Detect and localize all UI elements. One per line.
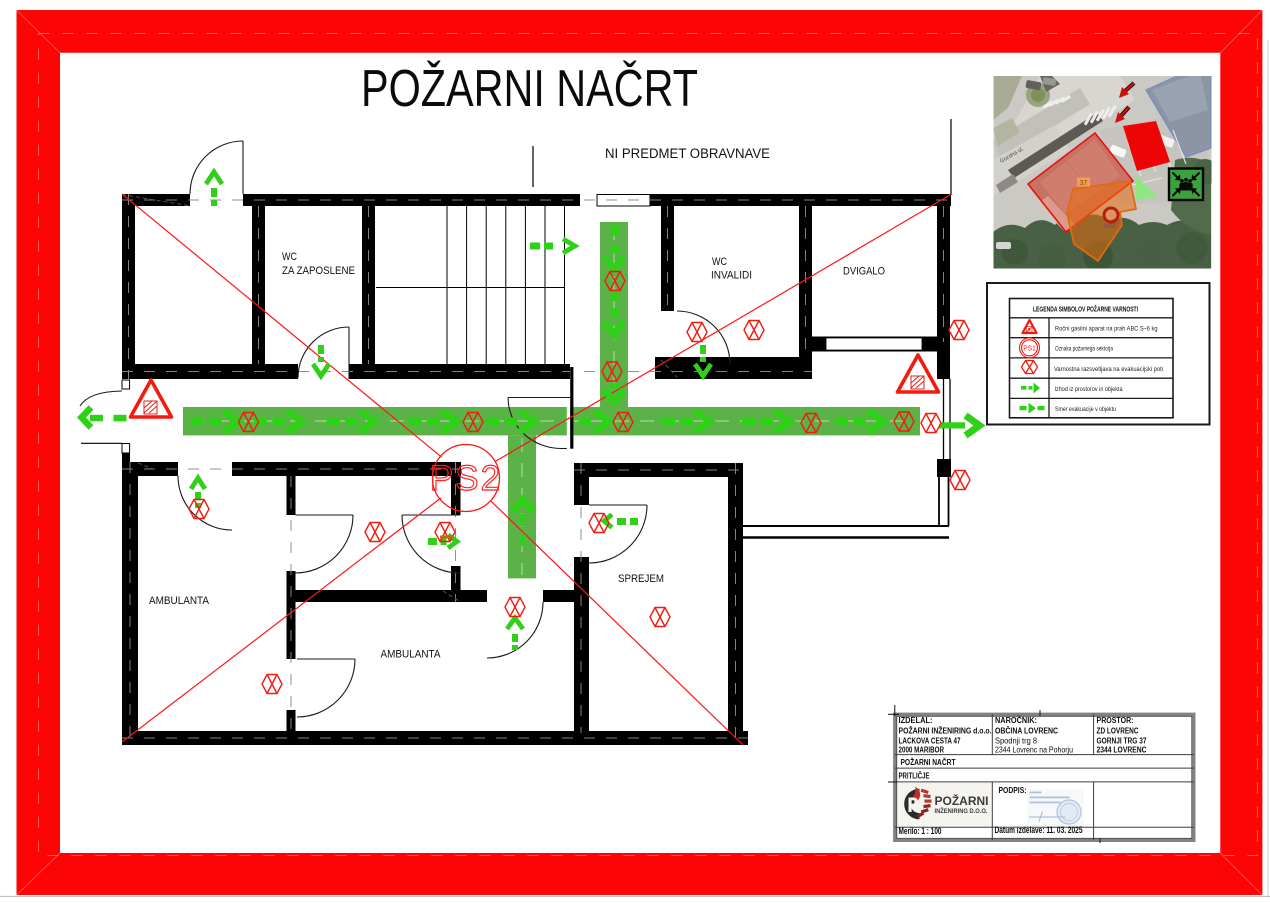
svg-text:AMBULANTA: AMBULANTA	[149, 595, 210, 607]
svg-text:PS2: PS2	[430, 459, 502, 498]
svg-text:Merilo: 1 : 100: Merilo: 1 : 100	[899, 826, 942, 836]
svg-text:Varnostna razsvetljava na evak: Varnostna razsvetljava na evakuacijski p…	[1054, 366, 1163, 373]
svg-text:PROSTOR:: PROSTOR:	[1097, 716, 1134, 725]
svg-text:NI PREDMET OBRAVNAVE: NI PREDMET OBRAVNAVE	[605, 146, 770, 161]
svg-text:SPREJEM: SPREJEM	[618, 573, 664, 585]
svg-text:Smer evakuacije v objektu: Smer evakuacije v objektu	[1055, 406, 1116, 413]
svg-text:1655: 1655	[1103, 224, 1117, 230]
svg-text:Spodnji trg 8: Spodnji trg 8	[995, 737, 1038, 746]
svg-text:NAROČNIK:: NAROČNIK:	[995, 716, 1037, 725]
svg-text:LEGENDA SIMBOLOV POŽARNE VARNO: LEGENDA SIMBOLOV POŽARNE VARNOSTI	[1033, 305, 1138, 314]
svg-text:PODPIS:: PODPIS:	[999, 785, 1027, 795]
svg-text:Izhod iz prostorov in objekta: Izhod iz prostorov in objekta	[1055, 386, 1123, 393]
svg-text:POŽARNI NAČRT: POŽARNI NAČRT	[361, 60, 698, 118]
svg-text:2344 LOVRENC: 2344 LOVRENC	[1097, 745, 1147, 754]
svg-text:POŽARNI: POŽARNI	[935, 795, 989, 808]
svg-text:INŽENIRING D.O.O.: INŽENIRING D.O.O.	[935, 806, 988, 815]
svg-text:WC: WC	[712, 256, 727, 268]
svg-text:PS1: PS1	[1023, 343, 1036, 352]
svg-text:IZDELAL:: IZDELAL:	[899, 716, 933, 725]
svg-text:2344 Lovrenc na Pohorju: 2344 Lovrenc na Pohorju	[995, 745, 1073, 754]
svg-text:PRITLIČJE: PRITLIČJE	[899, 772, 930, 781]
svg-text:Ročni gasilni aparat na prah A: Ročni gasilni aparat na prah ABC S–6 kg	[1055, 325, 1158, 332]
svg-text:DVIGALO: DVIGALO	[843, 266, 885, 278]
svg-text:AMBULANTA: AMBULANTA	[381, 649, 442, 661]
svg-text:ZD LOVRENC: ZD LOVRENC	[1097, 727, 1139, 736]
svg-text:POŽARNI INŽENIRING d.o.o.: POŽARNI INŽENIRING d.o.o.	[899, 727, 992, 736]
svg-text:2000 MARIBOR: 2000 MARIBOR	[899, 745, 945, 754]
svg-text:OBČINA LOVRENC: OBČINA LOVRENC	[995, 727, 1058, 736]
svg-text:GORNJI TRG 37: GORNJI TRG 37	[1097, 737, 1147, 746]
svg-text:Datum izdelave: 11. 03. 2025: Datum izdelave: 11. 03. 2025	[995, 825, 1083, 835]
svg-text:LACKOVA CESTA 47: LACKOVA CESTA 47	[899, 737, 961, 746]
svg-text:ZA ZAPOSLENE: ZA ZAPOSLENE	[282, 265, 355, 277]
svg-text:INVALIDI: INVALIDI	[711, 270, 752, 282]
svg-text:WC: WC	[282, 251, 297, 263]
svg-text:POŽARNI NAČRT: POŽARNI NAČRT	[901, 758, 956, 767]
svg-text:Oznaka požarnega sektorja: Oznaka požarnega sektorja	[1055, 346, 1113, 353]
svg-text:37: 37	[1080, 180, 1088, 187]
